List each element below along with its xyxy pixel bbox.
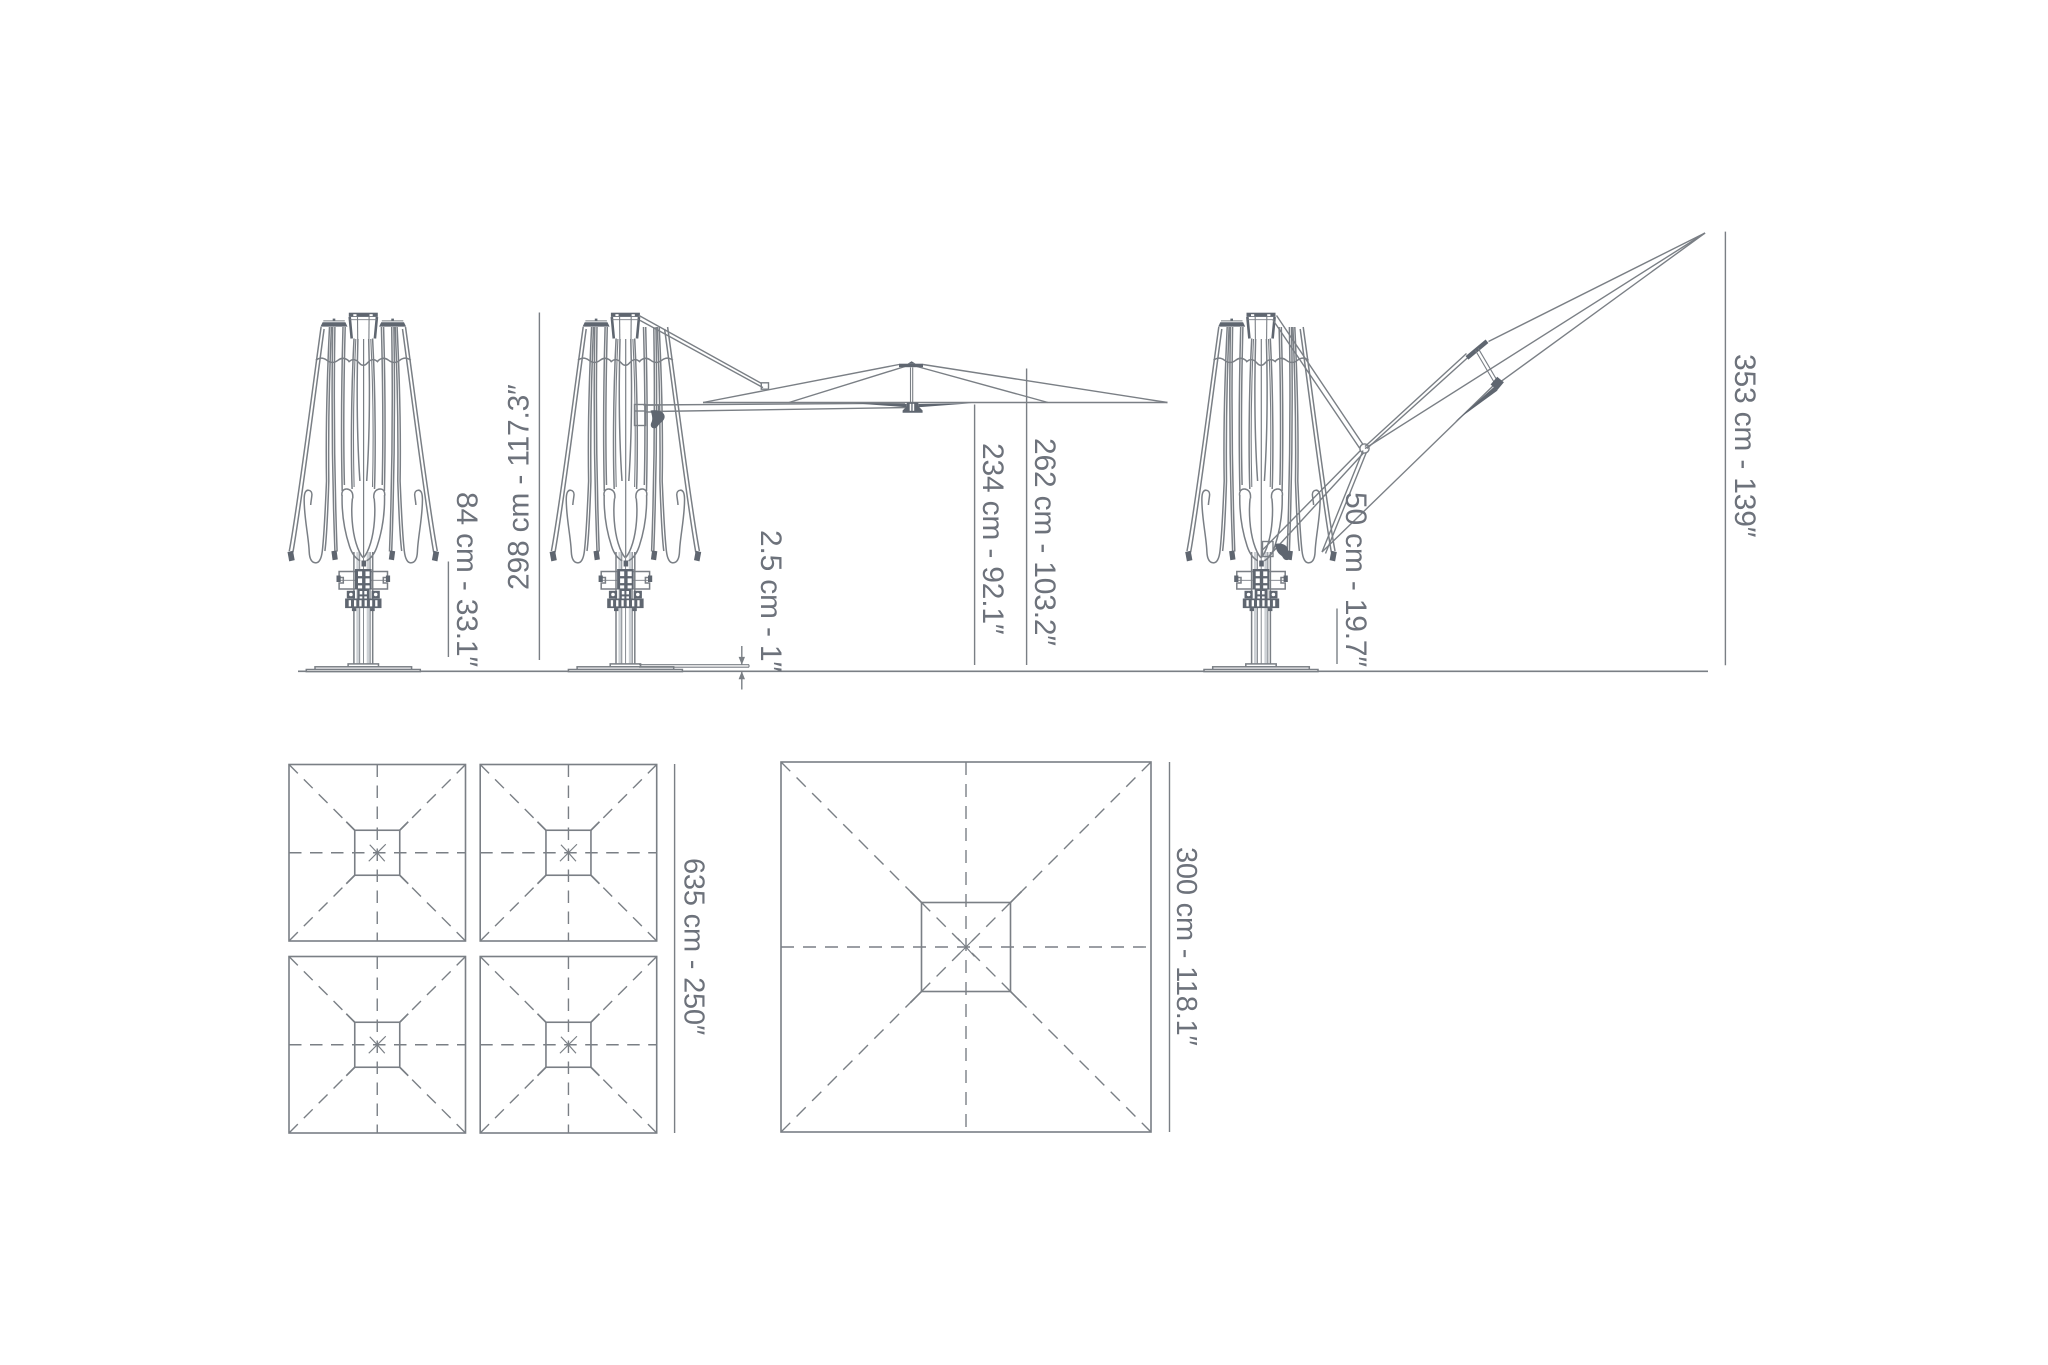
svg-text:2.5 cm - 1″: 2.5 cm - 1″ bbox=[754, 530, 787, 672]
svg-text:262 cm - 103.2″: 262 cm - 103.2″ bbox=[1028, 438, 1061, 646]
svg-text:50 cm - 19.7″: 50 cm - 19.7″ bbox=[1339, 492, 1372, 667]
svg-text:353 cm - 139″: 353 cm - 139″ bbox=[1728, 354, 1761, 538]
svg-text:298 cm - 117.3″: 298 cm - 117.3″ bbox=[503, 384, 536, 590]
svg-text:84 cm - 33.1″: 84 cm - 33.1″ bbox=[450, 492, 483, 667]
svg-text:234 cm - 92.1″: 234 cm - 92.1″ bbox=[976, 443, 1009, 635]
svg-text:300 cm - 118.1″: 300 cm - 118.1″ bbox=[1170, 847, 1202, 1046]
svg-text:635 cm - 250″: 635 cm - 250″ bbox=[678, 858, 710, 1035]
